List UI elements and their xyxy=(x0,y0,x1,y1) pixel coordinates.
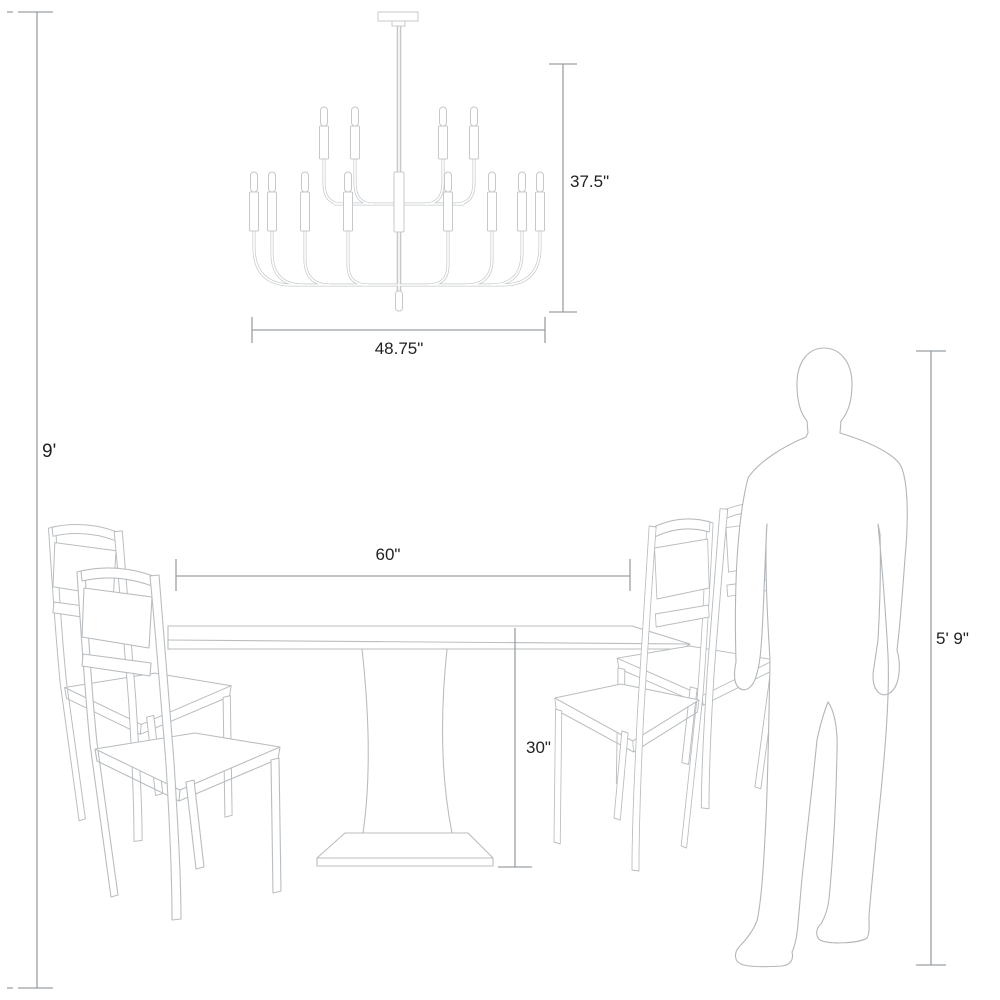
table-top xyxy=(168,626,690,649)
chandelier-width-label: 48.75" xyxy=(375,339,424,358)
table-width-label: 60" xyxy=(376,545,401,564)
ceiling-height-dimension xyxy=(7,12,53,988)
ceiling-height-label: 9' xyxy=(42,441,56,462)
table-width-dimension xyxy=(176,559,630,591)
person-height-dimension xyxy=(916,351,946,965)
table-pedestal xyxy=(317,649,493,866)
chandelier xyxy=(250,12,545,311)
chandelier-stem-sleeve xyxy=(394,172,404,232)
table-height-label: 30" xyxy=(526,738,551,757)
chandelier-stem-tip xyxy=(396,291,403,311)
dining-chair-front-left xyxy=(77,568,281,920)
chandelier-height-label: 37.5" xyxy=(570,172,609,191)
dimension-diagram: 9' 37.5" 48.75" 60" 30" 5' 9" xyxy=(0,0,1000,1000)
chandelier-canopy xyxy=(378,12,418,21)
person-height-label: 5' 9" xyxy=(936,629,969,648)
pedestal-base xyxy=(317,833,493,866)
person-silhouette xyxy=(734,348,907,967)
